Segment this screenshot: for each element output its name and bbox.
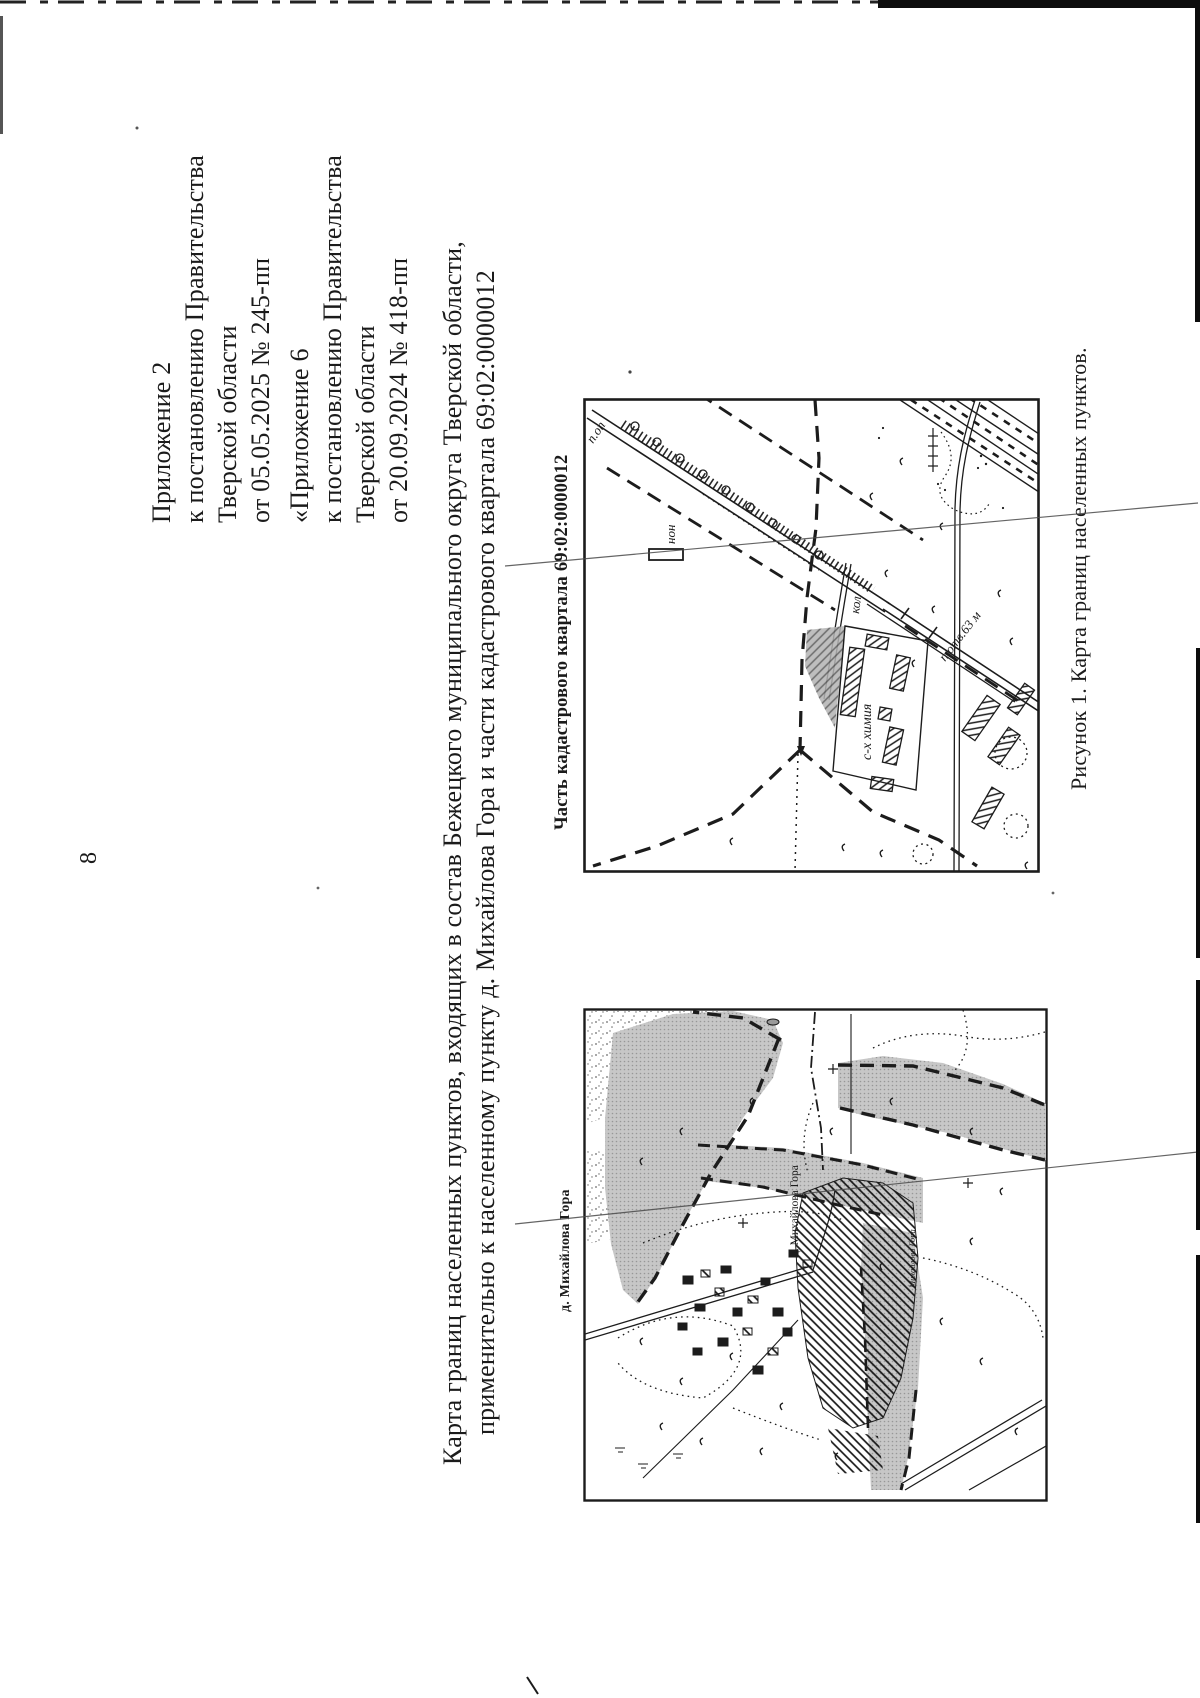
appendix-2-line-4: от 20.09.2024 № 418-пп bbox=[384, 258, 414, 523]
scan-artifact-right-edge-mid bbox=[1196, 648, 1200, 958]
scan-artifact-right-edge-low bbox=[1196, 980, 1200, 1230]
annotation-village-name-small: Михайлова Гора bbox=[907, 1229, 917, 1289]
cadastral-map-label: Часть кадастрового квартала 69:02:000001… bbox=[552, 455, 573, 831]
scan-speck-3 bbox=[317, 887, 320, 890]
scan-artifact-right-edge-top bbox=[1195, 0, 1200, 322]
scan-artifact-left-edge bbox=[0, 16, 3, 134]
annotation-kol: кол bbox=[847, 595, 864, 614]
appendix-1-line-4: от 05.05.2025 № 245-пп bbox=[246, 258, 276, 523]
appendix-1-line-3: Тверской области bbox=[213, 325, 243, 523]
settlement-map: д. Михайлова Гора Михайлова Гора bbox=[583, 1008, 1048, 1502]
scan-speck-bottom bbox=[527, 1677, 538, 1694]
annotation-non: нон bbox=[663, 525, 678, 544]
annotation-village-name: д. Михайлова Гора bbox=[789, 1165, 801, 1257]
scan-speck-1 bbox=[136, 127, 139, 130]
non-building bbox=[649, 549, 683, 560]
appendix-2-line-3: Тверской области bbox=[351, 325, 381, 523]
annotation-agro-chemistry: с-х химия bbox=[860, 704, 875, 760]
appendix-2-line-2: к постановлению Правительства bbox=[318, 155, 348, 523]
appendix-1-line-1: Приложение 2 bbox=[147, 362, 177, 523]
scanned-document-page: { "page_number": "8", "appendix_blocks":… bbox=[0, 0, 1200, 1698]
document-title-line-1: Карта границ населенных пунктов, входящи… bbox=[438, 241, 468, 1465]
settlement-map-label: д. Михайлова Гора bbox=[558, 1189, 574, 1312]
appendix-2-line-1: «Приложение 6 bbox=[285, 348, 315, 523]
scan-artifact-right-edge-lower bbox=[1196, 1255, 1200, 1523]
scan-speck-4 bbox=[1052, 892, 1055, 895]
scan-speck-2 bbox=[628, 370, 631, 373]
document-title-line-2: применительно к населенному пункту д. Ми… bbox=[471, 270, 501, 1435]
cadastral-map: п.оп нон кол п.отв.63 м с-х химия bbox=[583, 398, 1040, 873]
scan-artifact-top-right-bar bbox=[878, 0, 1200, 8]
figure-caption: Рисунок 1. Карта границ населенных пункт… bbox=[1066, 347, 1092, 790]
page-number: 8 bbox=[76, 852, 103, 864]
appendix-1-line-2: к постановлению Правительства bbox=[180, 155, 210, 523]
